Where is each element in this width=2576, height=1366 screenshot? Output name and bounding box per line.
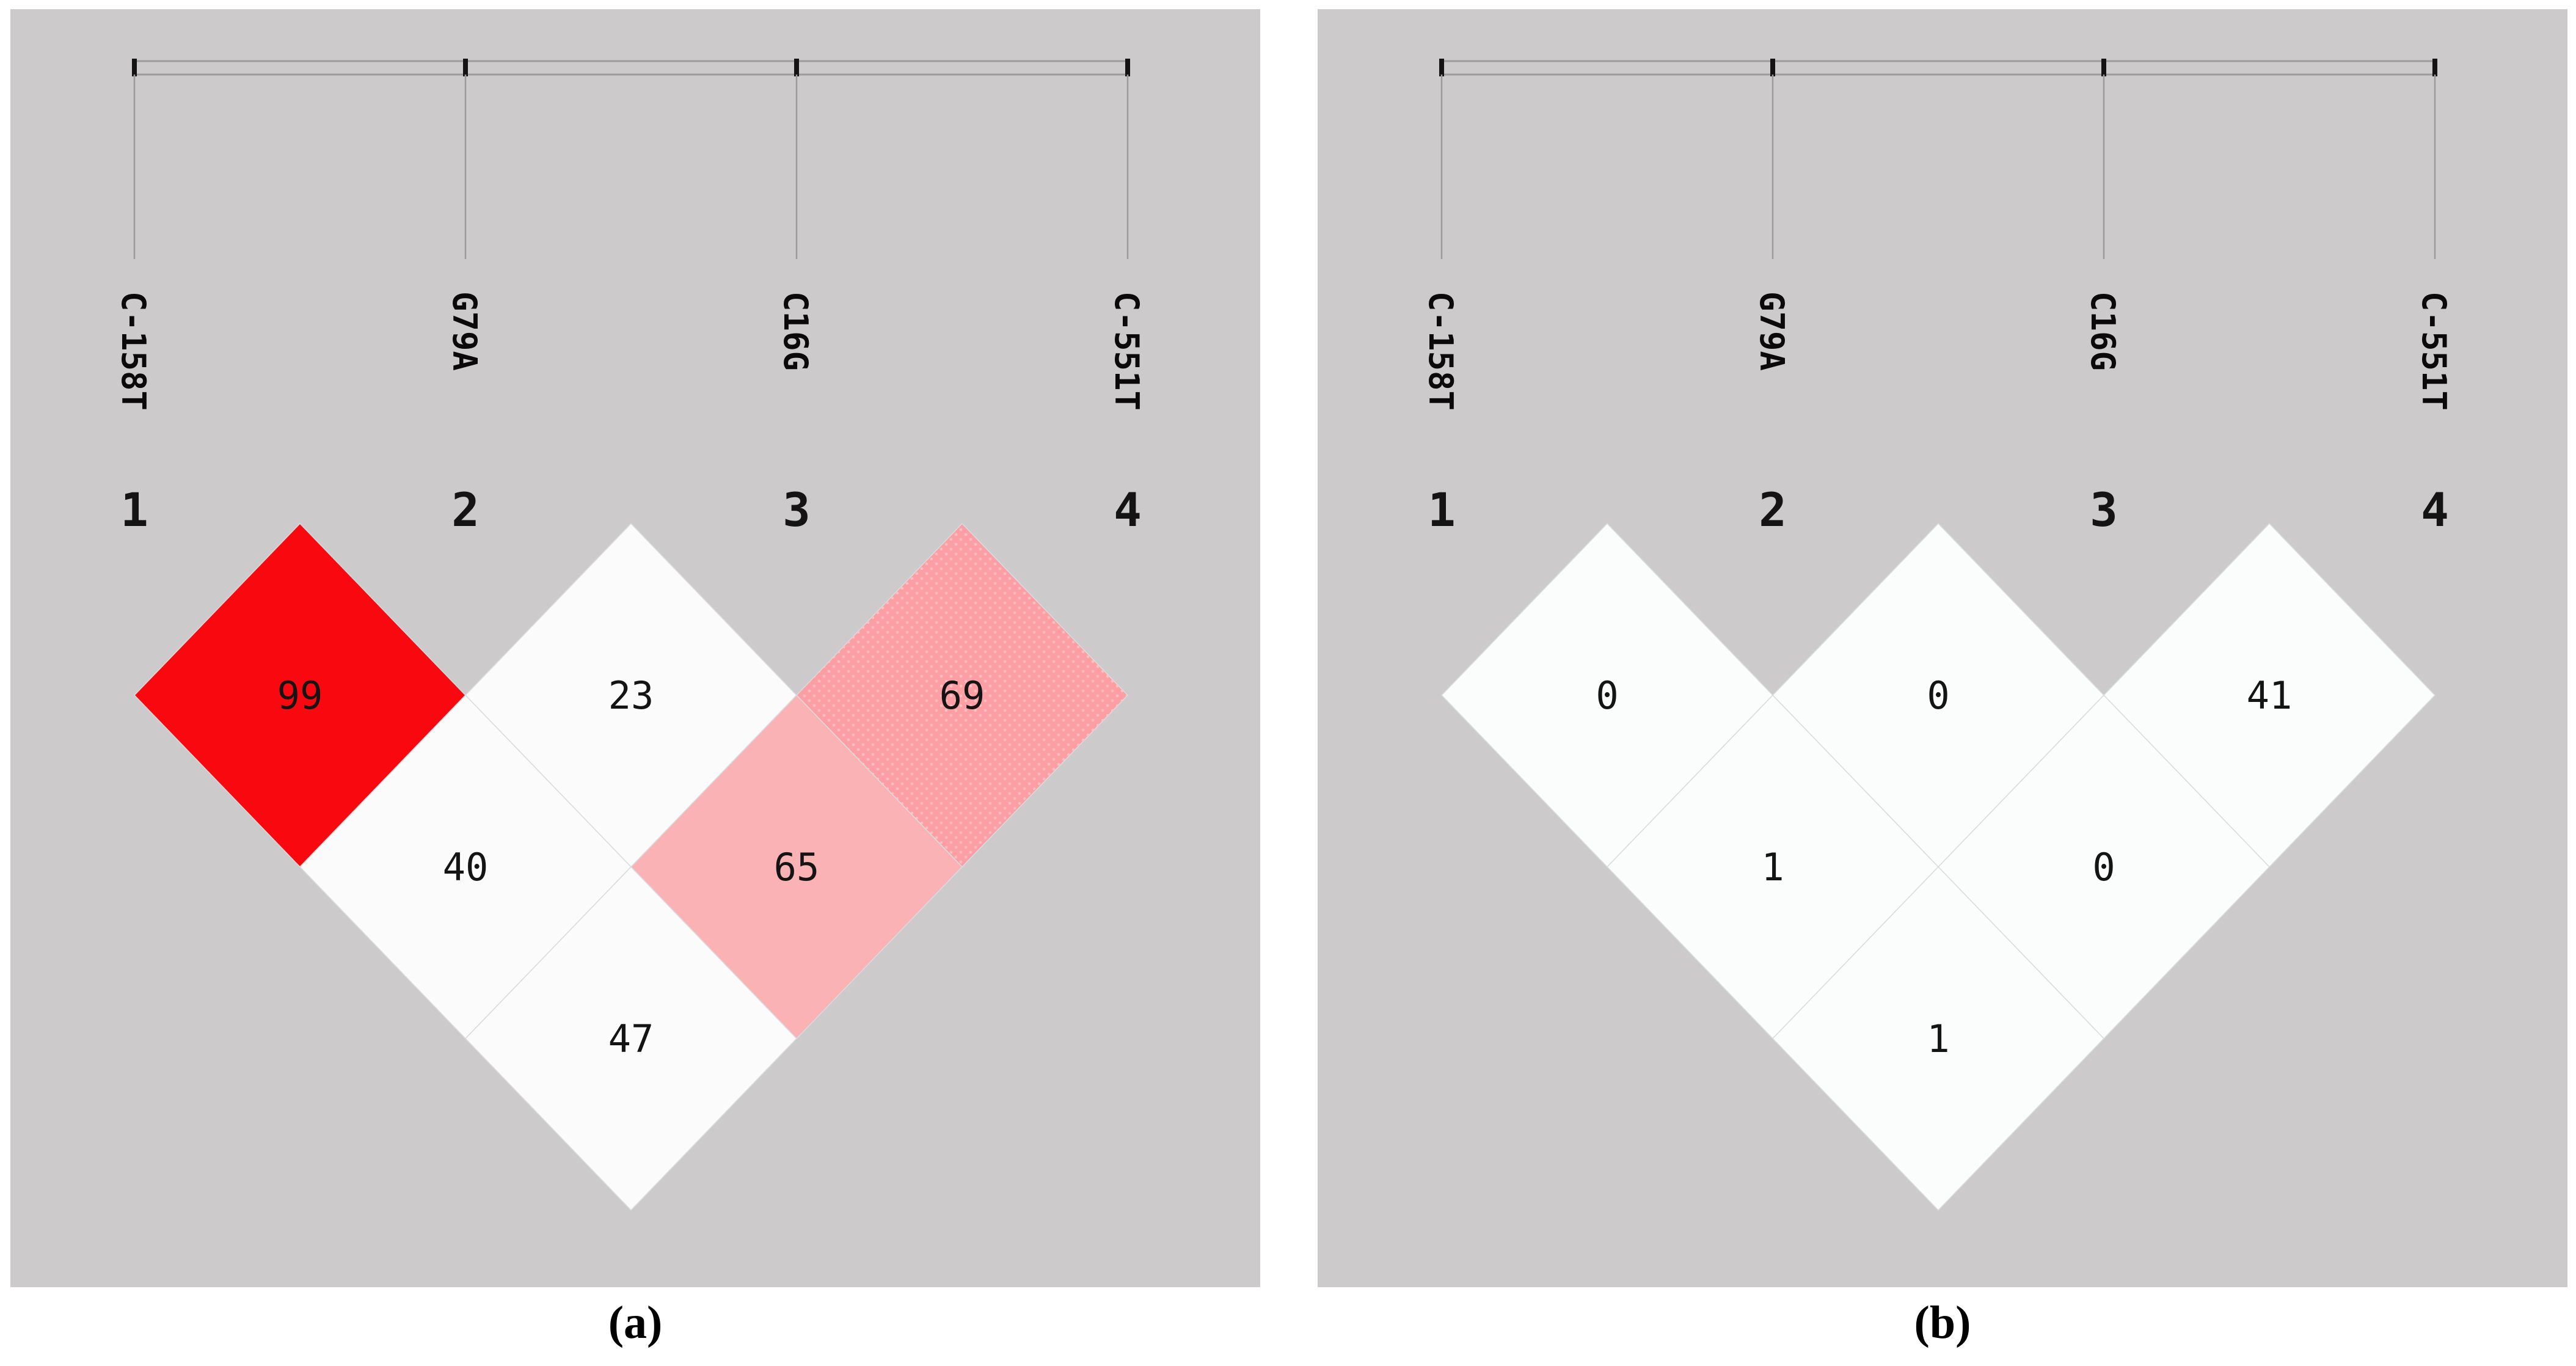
snp-label: G79A [445, 291, 484, 371]
ld-value: 0 [1927, 673, 1949, 718]
locus-line [1442, 61, 2435, 75]
ld-value: 0 [2092, 845, 2115, 889]
snp-label: C-158T [1421, 291, 1460, 411]
marker-tick-3 [2101, 59, 2106, 76]
ld-value: 40 [443, 845, 489, 889]
ld-plot-b: C-158T G79A C16G C-551T 1 2 3 4 0 0 41 1… [1318, 9, 2567, 1287]
ld-value: 65 [774, 845, 820, 889]
marker-number: 4 [1114, 483, 1142, 537]
marker-number: 2 [1759, 483, 1787, 537]
marker-number: 3 [783, 483, 811, 537]
marker-number: 2 [451, 483, 480, 537]
snp-label: C-551T [1107, 291, 1146, 411]
marker-tick-2 [1770, 59, 1775, 76]
snp-label: C16G [776, 291, 815, 371]
figure-caption-b: (b) [1814, 1296, 2071, 1350]
marker-number: 3 [2090, 483, 2118, 537]
ld-value: 41 [2247, 673, 2293, 718]
ld-panel-a: C-158T G79A C16G C-551T 1 2 3 4 99 23 69… [10, 9, 1260, 1287]
ld-value: 47 [608, 1017, 654, 1061]
ld-value: 69 [940, 673, 985, 718]
ld-value: 99 [277, 673, 323, 718]
ld-value: 1 [1927, 1017, 1949, 1061]
ld-plot-a: C-158T G79A C16G C-551T 1 2 3 4 99 23 69… [10, 9, 1260, 1287]
marker-number: 4 [2421, 483, 2449, 537]
figure-caption-a: (a) [507, 1296, 764, 1350]
snp-label: C-158T [114, 291, 153, 411]
ld-value: 1 [1761, 845, 1784, 889]
marker-tick-1 [1439, 59, 1444, 76]
marker-tick-3 [794, 59, 799, 76]
marker-number: 1 [120, 483, 148, 537]
snp-label: C-551T [2415, 291, 2453, 411]
marker-tick-1 [132, 59, 137, 76]
ld-panel-b: C-158T G79A C16G C-551T 1 2 3 4 0 0 41 1… [1318, 9, 2567, 1287]
marker-tick-4 [2432, 59, 2437, 76]
ld-value: 23 [608, 673, 654, 718]
snp-label: G79A [1753, 291, 1791, 371]
marker-tick-4 [1125, 59, 1130, 76]
snp-label: C16G [2084, 291, 2122, 371]
ld-value: 0 [1596, 673, 1618, 718]
marker-number: 1 [1428, 483, 1456, 537]
marker-tick-2 [463, 59, 468, 76]
locus-line [134, 61, 1128, 75]
